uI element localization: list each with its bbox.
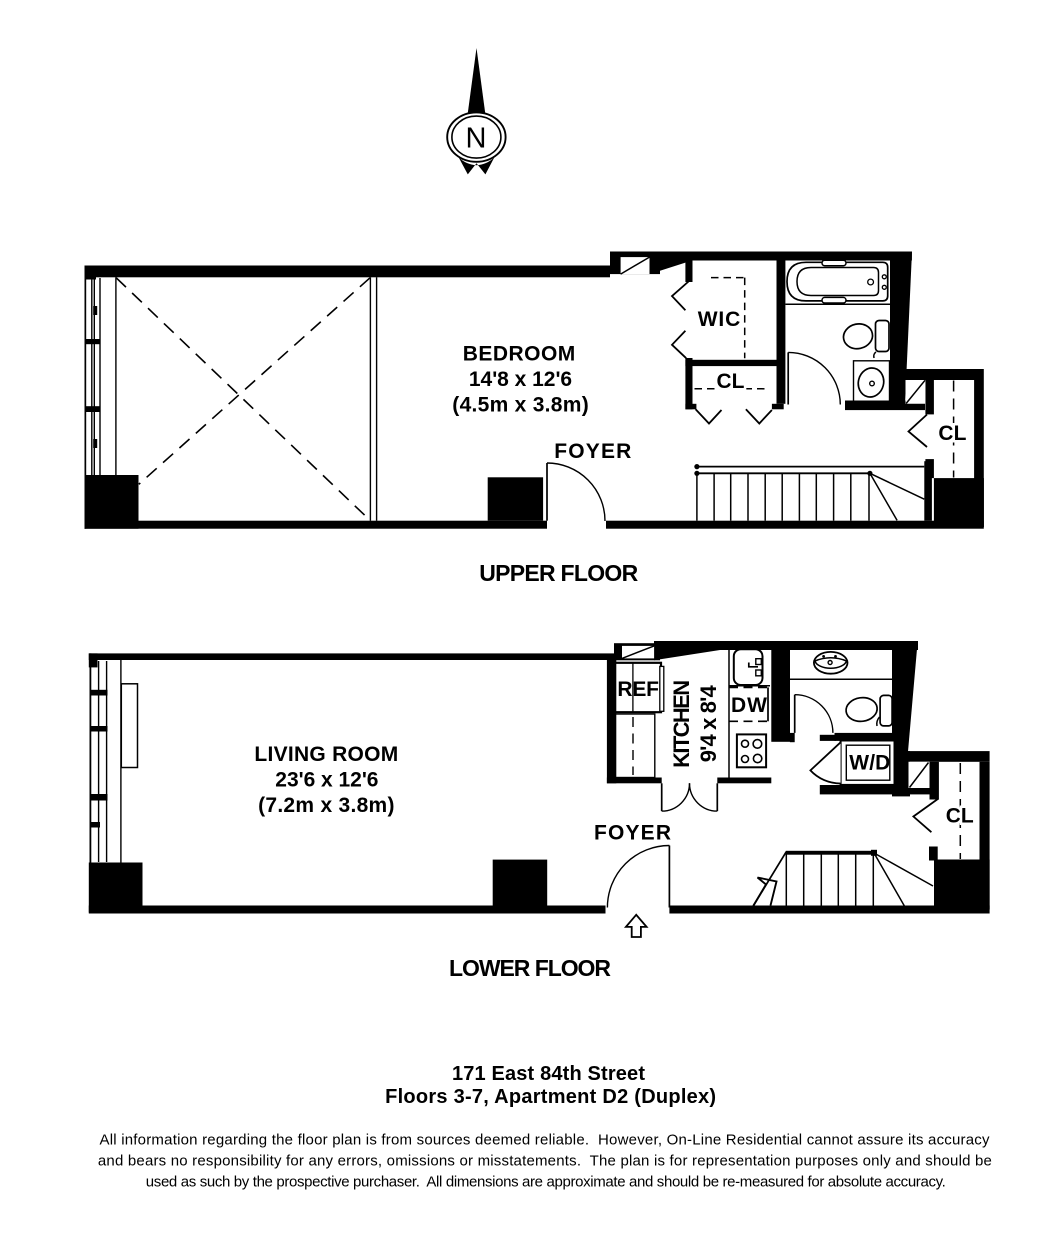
svg-text:LOWER FLOOR: LOWER FLOOR xyxy=(449,955,611,981)
svg-text:FOYER: FOYER xyxy=(594,822,671,845)
svg-text:FOYER: FOYER xyxy=(554,440,631,463)
svg-text:DW: DW xyxy=(731,694,767,717)
svg-text:BEDROOM: BEDROOM xyxy=(463,343,576,366)
svg-text:(7.2m x 3.8m): (7.2m x 3.8m) xyxy=(258,794,394,817)
svg-text:KITCHEN: KITCHEN xyxy=(669,680,694,768)
svg-text:CL: CL xyxy=(717,370,745,393)
svg-text:LIVING ROOM: LIVING ROOM xyxy=(254,743,398,766)
svg-text:UPPER FLOOR: UPPER FLOOR xyxy=(479,560,638,586)
svg-text:N: N xyxy=(466,123,487,155)
svg-text:REF: REF xyxy=(617,678,659,701)
svg-text:(4.5m x 3.8m): (4.5m x 3.8m) xyxy=(452,394,588,417)
svg-text:CL: CL xyxy=(946,805,974,828)
svg-text:and bears no responsibility fo: and bears no responsibility for any erro… xyxy=(98,1153,992,1170)
svg-text:9'4 x 8'4: 9'4 x 8'4 xyxy=(696,684,721,762)
svg-text:CL: CL xyxy=(938,422,966,445)
svg-text:Floors 3-7, Apartment D2 (Dupl: Floors 3-7, Apartment D2 (Duplex) xyxy=(385,1086,716,1108)
svg-text:23'6 x 12'6: 23'6 x 12'6 xyxy=(275,769,378,792)
svg-text:All information regarding the: All information regarding the floor plan… xyxy=(100,1131,991,1148)
svg-text:171 East 84th Street: 171 East 84th Street xyxy=(452,1063,645,1085)
svg-text:14'8 x 12'6: 14'8 x 12'6 xyxy=(469,368,572,391)
svg-text:used as such by the prospectiv: used as such by the prospective purchase… xyxy=(146,1174,946,1191)
svg-text:W/D: W/D xyxy=(849,751,890,774)
svg-text:WIC: WIC xyxy=(698,308,741,331)
